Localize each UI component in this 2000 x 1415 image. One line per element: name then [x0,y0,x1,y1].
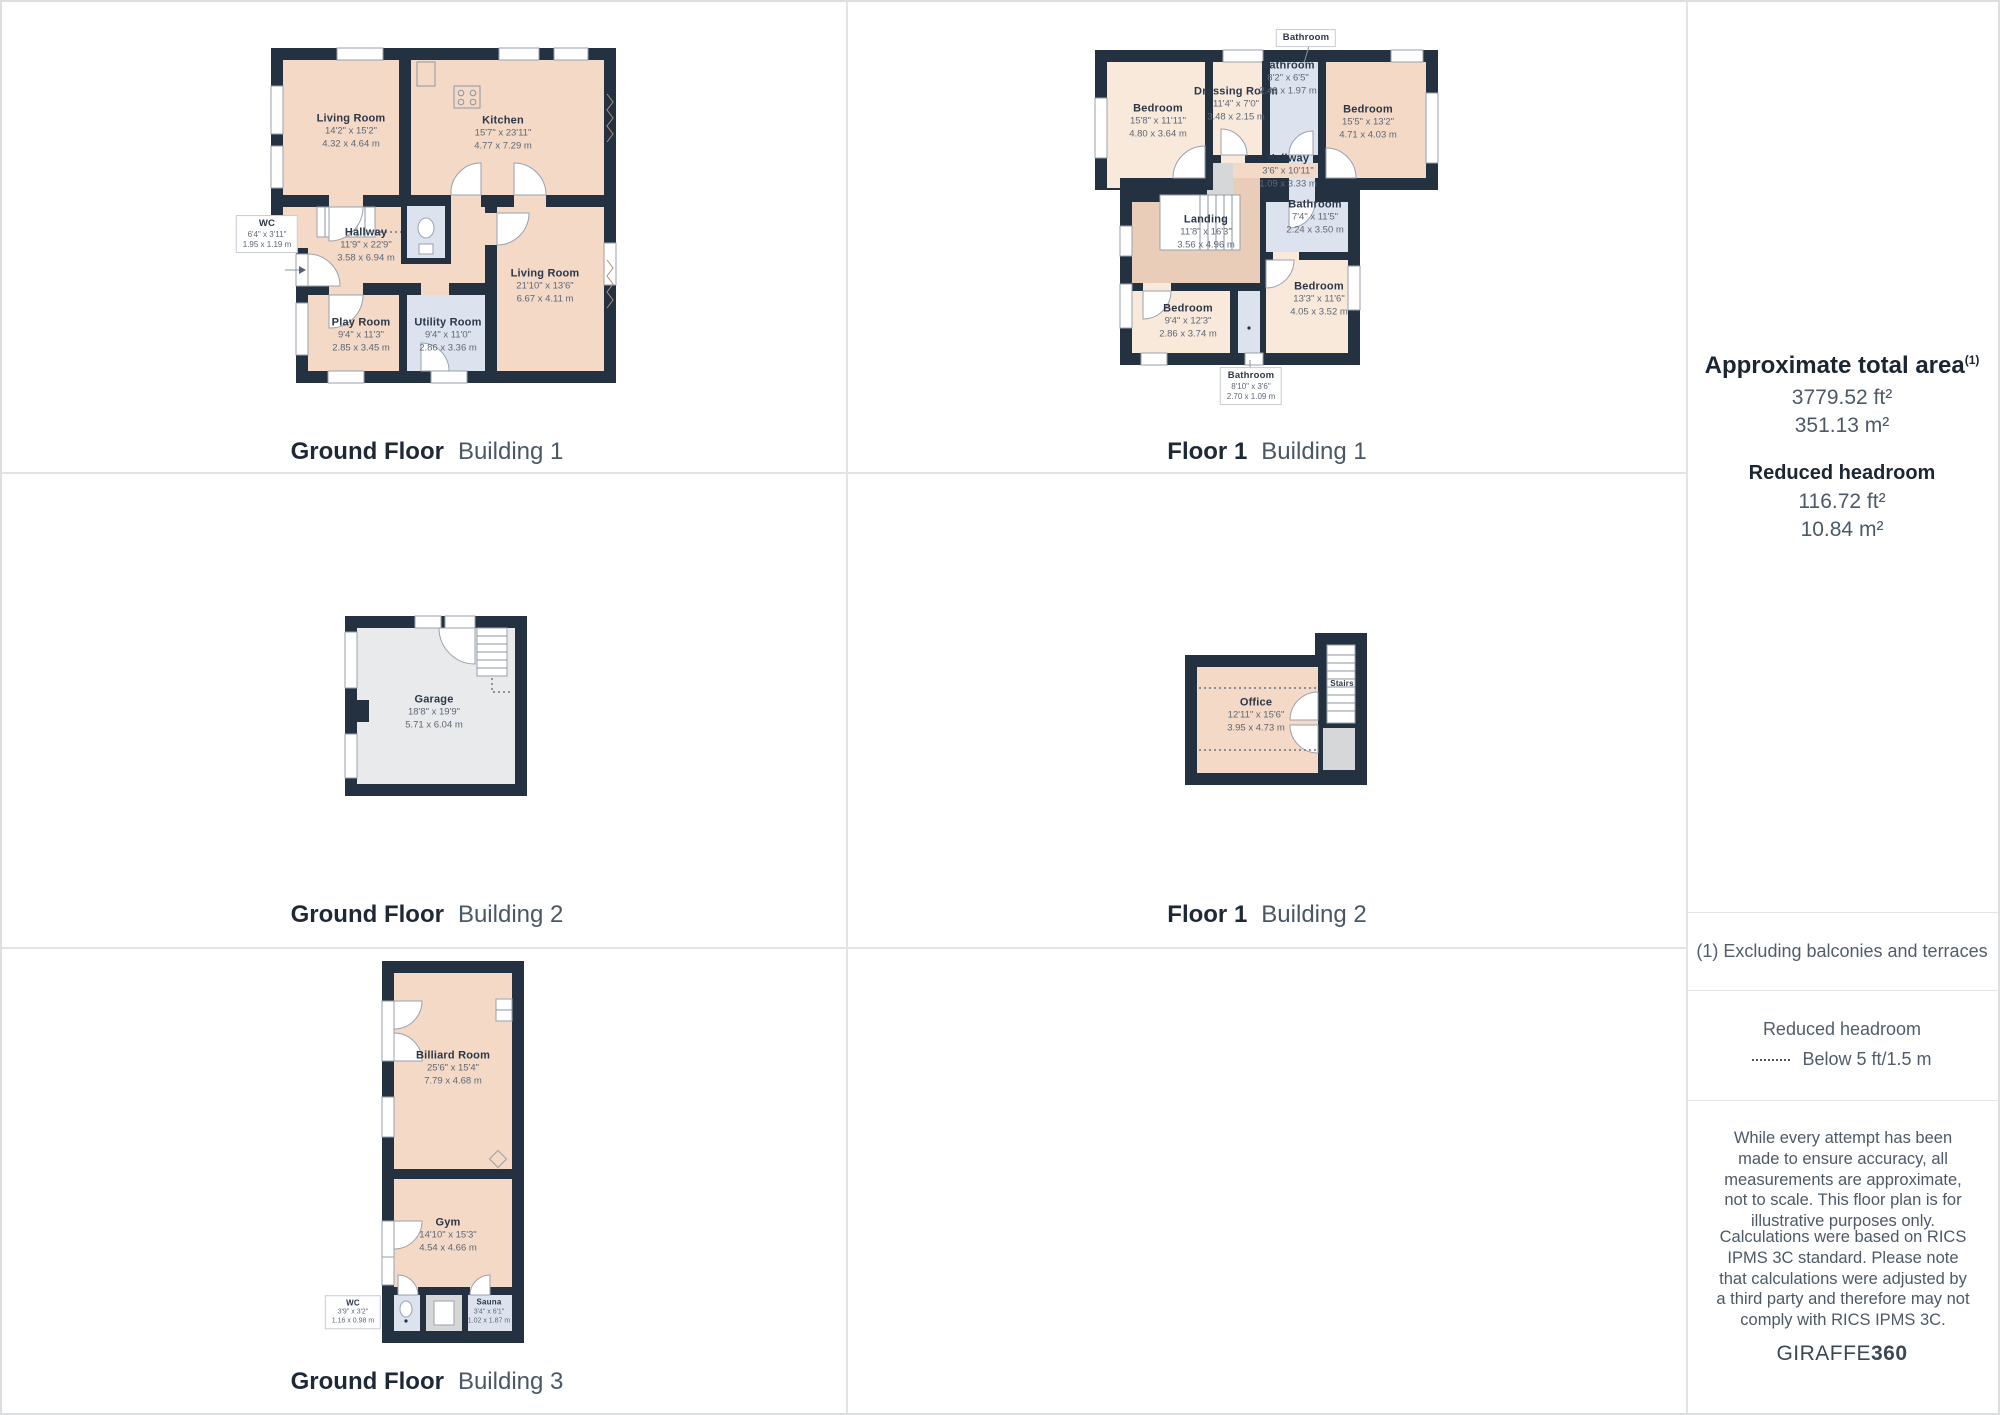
floorplan-ground-floor-building-3 [378,957,528,1349]
room-label-bedroom-bottom-left: Bedroom 9'4" x 12'3" 2.86 x 3.74 m [1159,302,1217,341]
total-area-m: 351.13 m² [1686,414,1998,438]
room-callout-bathroom-top: Bathroom [1276,29,1336,47]
room-label-hallway-f1: Hallway 3'6" x 10'11" 1.09 x 3.33 m [1259,152,1317,191]
room-label-gym: Gym 14'10" x 15'3" 4.54 x 4.66 m [419,1216,477,1255]
room-label-utility-room: Utility Room 9'4" x 11'0" 2.86 x 3.36 m [414,316,481,355]
legend-row: Below 5 ft/1.5 m [1686,1049,1998,1070]
footnote-text: (1) Excluding balconies and terraces [1686,941,1998,962]
disclaimer-paragraph-1: While every attempt has been made to ens… [1714,1128,1972,1232]
room-label-stairs: Stairs [1330,679,1353,689]
room-label-kitchen: Kitchen 15'7" x 23'11" 4.77 x 7.29 m [474,114,532,153]
room-callout-wc-gym: WC 3'9" x 3'2" 1.16 x 0.98 m [325,1295,381,1329]
caption-ground-floor-building-1: Ground FloorBuilding 1 [291,438,564,466]
room-callout-wc: WC 6'4" x 3'11" 1.95 x 1.19 m [236,215,298,253]
grid-divider-row-1 [0,472,1686,474]
room-label-bedroom-bottom-right: Bedroom 13'3" x 11'6" 4.05 x 3.52 m [1290,280,1348,319]
room-label-bedroom-top-left: Bedroom 15'8" x 11'11" 4.80 x 3.64 m [1129,102,1187,141]
caption-ground-floor-building-3: Ground FloorBuilding 3 [291,1368,564,1396]
grid-divider-vertical-2 [1686,0,1688,1415]
legend-label: Below 5 ft/1.5 m [1802,1049,1931,1070]
disclaimer-paragraph-2: Calculations were based on RICS IPMS 3C … [1714,1227,1972,1331]
room-callout-bathroom-bottom: Bathroom 8'10" x 3'6" 2.70 x 1.09 m [1220,367,1282,405]
floorplan-sheet: Living Room 14'2" x 15'2" 4.32 x 4.64 m … [0,0,2000,1415]
room-label-living-room-1: Living Room 14'2" x 15'2" 4.32 x 4.64 m [317,112,386,151]
reduced-headroom-title: Reduced headroom [1686,462,1998,485]
room-label-bedroom-top-right: Bedroom 15'5" x 13'2" 4.71 x 4.03 m [1339,103,1397,142]
grid-divider-vertical-1 [846,0,848,1415]
footnote-marker: (1) [1965,353,1980,367]
panel-divider-3 [1686,1100,2000,1101]
total-area-ft: 3779.52 ft² [1686,386,1998,410]
legend-title: Reduced headroom [1686,1019,1998,1040]
room-label-hallway: Hallway 11'9" x 22'9" 3.58 x 6.94 m [337,226,395,265]
reduced-headroom-dash-icon [1752,1059,1790,1061]
caption-floor-1-building-2: Floor 1Building 2 [1167,901,1366,929]
room-label-living-room-2: Living Room 21'10" x 13'6" 6.67 x 4.11 m [511,267,580,306]
room-label-bathroom-top: Bathroom 8'2" x 6'5" 2.49 x 1.97 m [1259,59,1317,98]
panel-divider-1 [1686,912,2000,913]
stairs-icon [477,628,507,676]
room-label-sauna: Sauna 3'4" x 6'1" 1.02 x 1.87 m [468,1298,510,1327]
room-label-play-room: Play Room 9'4" x 11'3" 2.85 x 3.45 m [332,316,391,355]
fireplace-icon [496,999,512,1021]
caption-floor-1-building-1: Floor 1Building 1 [1167,438,1366,466]
room-label-billiard-room: Billiard Room 25'6" x 15'4" 7.79 x 4.68 … [416,1049,490,1088]
reduced-headroom-ft: 116.72 ft² [1686,490,1998,514]
room-label-landing: Landing 11'8" x 16'3" 3.56 x 4.96 m [1177,213,1235,252]
room-label-garage: Garage 18'8" x 19'9" 5.71 x 6.04 m [405,693,463,732]
room-label-office: Office 12'11" x 15'6" 3.95 x 4.73 m [1227,696,1285,735]
panel-divider-2 [1686,990,2000,991]
grid-divider-row-2 [0,947,1686,949]
room-label-bathroom-mid: Bathroom 7'4" x 11'5" 2.24 x 3.50 m [1286,198,1344,237]
reduced-headroom-m: 10.84 m² [1686,518,1998,542]
total-area-title: Approximate total area(1) [1686,352,1998,380]
caption-ground-floor-building-2: Ground FloorBuilding 2 [291,901,564,929]
giraffe360-logo: GIRAFFE360 [1686,1342,1998,1366]
